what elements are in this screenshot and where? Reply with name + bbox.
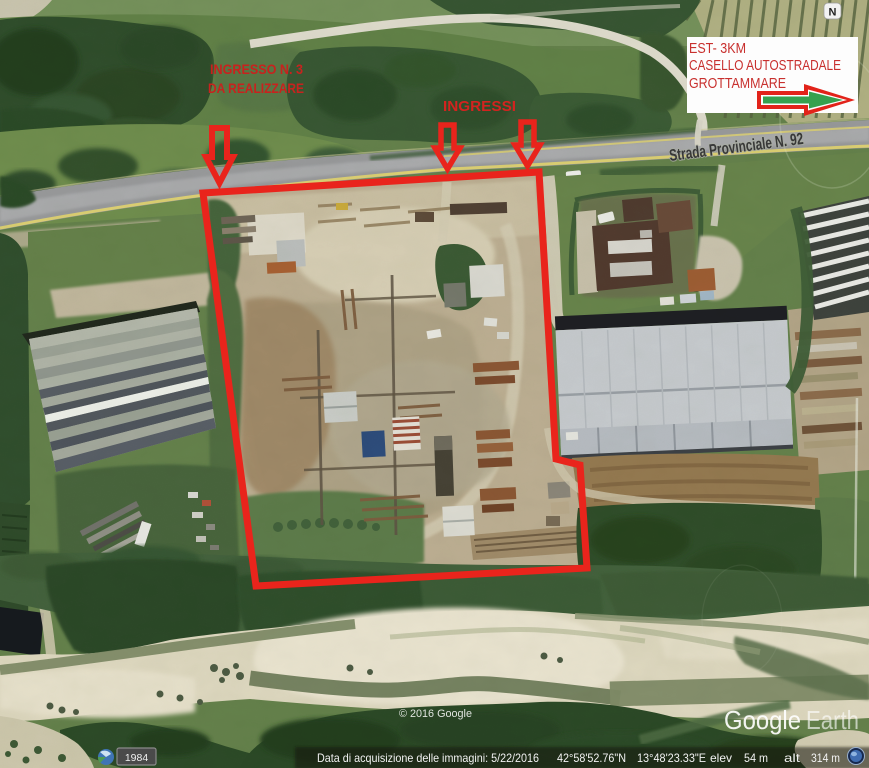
svg-text:314 m: 314 m — [811, 751, 840, 765]
svg-text:54 m: 54 m — [744, 751, 768, 765]
svg-text:N: N — [829, 7, 837, 19]
svg-text:Earth: Earth — [806, 705, 859, 735]
svg-text:13°48'23.33"E: 13°48'23.33"E — [637, 751, 706, 765]
svg-text:GROTTAMMARE: GROTTAMMARE — [689, 76, 786, 92]
svg-text:elev: elev — [710, 751, 732, 765]
svg-text:CASELLO AUTOSTRADALE: CASELLO AUTOSTRADALE — [689, 58, 841, 74]
svg-text:42°58'52.76"N: 42°58'52.76"N — [557, 751, 626, 765]
svg-text:INGRESSO N. 3: INGRESSO N. 3 — [210, 61, 303, 77]
svg-text:INGRESSI: INGRESSI — [443, 98, 516, 115]
svg-text:Data di acquisizione delle imm: Data di acquisizione delle immagini: 5/2… — [317, 751, 539, 765]
svg-text:1984: 1984 — [125, 752, 149, 764]
svg-text:© 2016 Google: © 2016 Google — [399, 708, 472, 720]
svg-text:alt: alt — [784, 751, 801, 765]
svg-text:Google: Google — [724, 705, 801, 735]
svg-text:DA REALIZZARE: DA REALIZZARE — [208, 80, 304, 96]
svg-text:EST- 3KM: EST- 3KM — [689, 41, 746, 57]
